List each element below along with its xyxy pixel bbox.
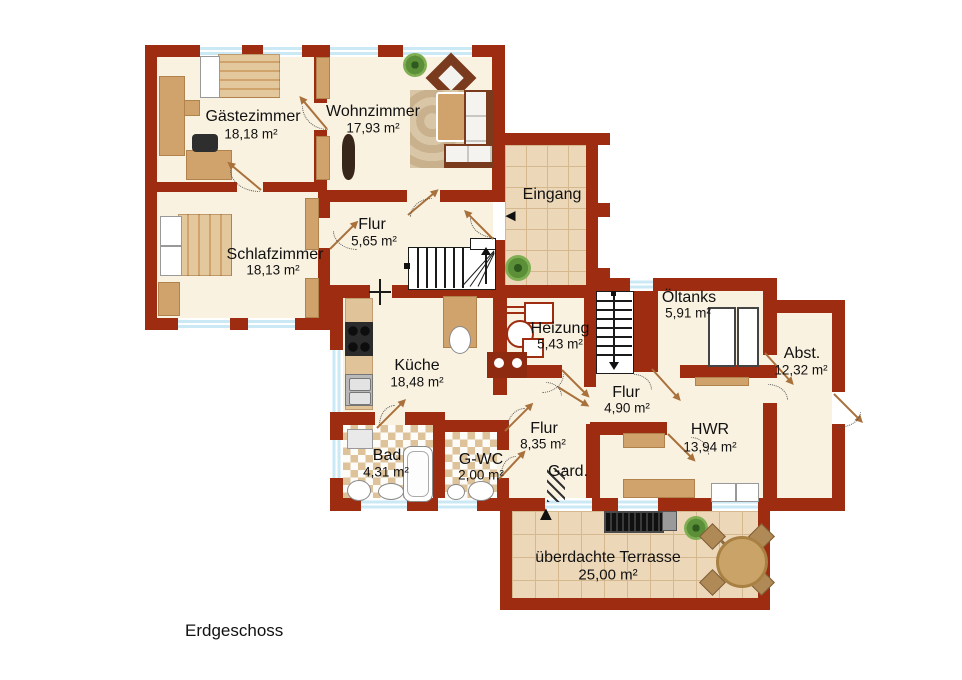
room-label-terrasse: überdachte Terrasse <box>535 549 681 567</box>
stair-tread <box>453 247 455 288</box>
kitchen-sink-basin-icon <box>349 392 371 405</box>
room-area-wohnzimmer: 17,93 m² <box>346 121 399 136</box>
room-label-wohnzimmer: Wohnzimmer <box>326 103 420 121</box>
room-area-schlafzimmer: 18,13 m² <box>246 263 299 278</box>
wall <box>330 412 375 425</box>
door-arc <box>837 412 861 428</box>
terrace-wall <box>500 511 512 610</box>
room-label-flur-og: Flur <box>358 216 386 234</box>
wall <box>592 498 618 511</box>
wall <box>477 498 545 511</box>
window <box>330 440 343 478</box>
stove-icon <box>345 322 373 356</box>
floor-title: Erdgeschoss <box>185 621 283 641</box>
plate-icon <box>449 326 471 354</box>
wall <box>263 182 327 192</box>
stair-direction-line <box>485 254 487 284</box>
room-label-garderobe: Gard. <box>548 463 588 481</box>
wall <box>318 192 330 218</box>
room-label-bad: Bad <box>373 447 401 465</box>
wardrobe-icon <box>305 278 319 318</box>
wardrobe-icon <box>159 76 185 156</box>
wall <box>763 403 777 498</box>
window <box>248 318 295 330</box>
grill-icon <box>604 511 664 533</box>
room-label-hwr: HWR <box>691 421 729 439</box>
room-area-gaestezimmer: 18,18 m² <box>224 127 277 142</box>
wall-pier <box>598 133 610 145</box>
wall <box>440 190 505 202</box>
workbench-icon <box>623 479 695 498</box>
room-area-flur-mitte: 4,90 m² <box>604 401 650 416</box>
bed-pillow-icon <box>200 56 220 98</box>
stair-down-arrow-icon <box>609 362 619 370</box>
window <box>630 278 653 291</box>
room-label-heizung: Heizung <box>531 320 590 338</box>
stair-tread <box>435 247 437 288</box>
tv-sideboard-icon <box>342 134 355 180</box>
utility-sink-basin-icon <box>494 358 504 368</box>
room-label-oeltanks: Öltanks <box>662 289 716 307</box>
nightstand-icon <box>184 100 200 116</box>
bed-pillow-icon <box>160 216 182 246</box>
bathtub-inner-icon <box>407 451 429 497</box>
stair-tread <box>462 247 464 288</box>
wall <box>763 278 777 355</box>
oil-tank-icon <box>708 307 736 367</box>
cabinet-icon <box>316 136 330 180</box>
stair-tread <box>444 247 446 288</box>
washbasin-icon <box>447 484 465 500</box>
bed-icon <box>218 54 280 98</box>
wall <box>658 498 712 511</box>
room-area-gwc: 2,00 m² <box>458 468 504 483</box>
stair-up-arrow-icon <box>481 247 491 255</box>
grill-side-table-icon <box>662 511 677 531</box>
wall <box>505 133 598 145</box>
shelf-icon <box>623 433 665 448</box>
utility-sink-basin-icon <box>512 358 522 368</box>
wall <box>586 133 598 298</box>
plant-icon <box>505 255 531 281</box>
boiler-pipe-icon <box>507 312 525 314</box>
coffee-table-icon <box>436 92 466 142</box>
wall-pier <box>598 203 610 217</box>
room-label-gaestezimmer: Gästezimmer <box>205 108 300 126</box>
room-label-kueche: Küche <box>394 357 439 375</box>
abst-floor <box>777 313 832 498</box>
window <box>178 318 230 330</box>
plant-icon <box>403 53 427 77</box>
wall <box>327 190 407 202</box>
boiler-pipe-icon <box>507 306 525 308</box>
desk-chair-icon <box>192 134 218 152</box>
wall <box>330 285 343 350</box>
room-area-hwr: 13,94 m² <box>683 440 736 455</box>
room-area-bad: 4,31 m² <box>363 465 409 480</box>
dryer-icon <box>736 483 759 502</box>
terrace-wall <box>500 598 770 610</box>
room-label-flur-mitte: Flur <box>612 384 640 402</box>
toilet-icon <box>347 480 371 501</box>
wall <box>433 412 445 498</box>
sofa-cushion-icon <box>446 146 492 162</box>
shelf-icon <box>695 377 749 386</box>
french-door-symbol <box>369 291 391 293</box>
wall <box>586 424 600 498</box>
floor-plan: ◄ ▲ <box>0 0 962 680</box>
room-area-flur-og: 5,65 m² <box>351 234 397 249</box>
toilet-icon <box>468 481 494 501</box>
dresser-icon <box>158 282 180 316</box>
washer-icon <box>711 483 736 502</box>
wall <box>145 182 237 192</box>
wall <box>493 285 507 395</box>
washbasin-icon <box>378 483 404 500</box>
window <box>618 498 658 511</box>
room-label-schlafzimmer: Schlafzimmer <box>227 246 324 264</box>
room-label-flur-sued: Flur <box>530 420 558 438</box>
room-label-gwc: G-WC <box>459 451 503 469</box>
cabinet-icon <box>316 57 330 99</box>
room-area-kueche: 18,48 m² <box>390 375 443 390</box>
wardrobe-icon <box>305 198 319 250</box>
terrace-entrance-arrow-icon: ▲ <box>536 504 556 524</box>
room-area-terrasse: 25,00 m² <box>578 567 637 584</box>
room-area-oeltanks: 5,91 m² <box>665 306 711 321</box>
window <box>330 350 343 412</box>
window <box>361 498 407 511</box>
wall <box>445 420 509 432</box>
entrance-arrow-icon: ◄ <box>502 207 519 224</box>
stair-tread <box>426 247 428 288</box>
room-area-heizung: 5,43 m² <box>537 337 583 352</box>
room-area-flur-sued: 8,35 m² <box>520 437 566 452</box>
kitchen-sink-basin-icon <box>349 378 371 391</box>
stair-start-dot <box>404 263 410 269</box>
double-bed-icon <box>178 214 232 276</box>
wall <box>145 318 330 330</box>
stair-tread <box>417 247 419 288</box>
room-area-abst: 12,32 m² <box>774 363 827 378</box>
wall <box>832 300 845 392</box>
bath-cabinet-icon <box>347 429 373 449</box>
oil-tank-icon <box>737 307 759 367</box>
wall <box>632 278 658 372</box>
bed-pillow-icon <box>160 246 182 276</box>
terrace-table-icon <box>716 536 768 588</box>
room-label-eingang: Eingang <box>523 186 582 204</box>
wall <box>497 430 509 450</box>
wall <box>758 498 845 511</box>
stair-direction-line <box>613 294 615 362</box>
stair-start-dot <box>611 291 616 296</box>
window <box>330 45 378 57</box>
window <box>438 498 477 511</box>
room-label-abst: Abst. <box>784 345 820 363</box>
